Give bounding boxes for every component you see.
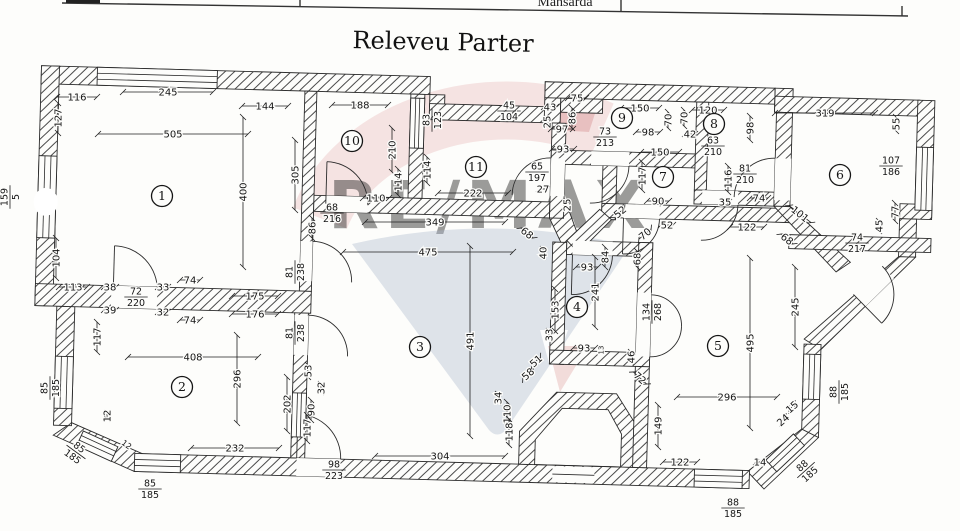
svg-text:32: 32	[317, 382, 328, 395]
svg-text:114: 114	[423, 160, 434, 179]
svg-text:110: 110	[366, 194, 385, 205]
svg-text:53: 53	[304, 365, 315, 378]
svg-text:88: 88	[829, 386, 840, 398]
dimension-label: 85185	[40, 376, 63, 399]
dimension-label: 35	[718, 198, 732, 209]
svg-text:74: 74	[184, 276, 197, 287]
svg-text:97: 97	[556, 125, 569, 136]
svg-text:216: 216	[323, 214, 341, 225]
dimension-label: 27	[536, 185, 550, 196]
svg-text:12: 12	[103, 410, 114, 423]
svg-text:210: 210	[736, 175, 754, 186]
svg-text:268: 268	[653, 303, 664, 321]
svg-text:38: 38	[104, 283, 117, 294]
dimension-label: 52	[658, 221, 676, 232]
svg-text:117: 117	[638, 166, 649, 185]
dimension-label: 88185	[721, 498, 744, 521]
dimension-label: 107186	[879, 156, 902, 179]
svg-text:238: 238	[296, 324, 307, 342]
svg-text:134: 134	[642, 303, 653, 321]
svg-text:86: 86	[308, 222, 319, 235]
dimension-label: 33	[545, 328, 556, 342]
dimension-label: 25	[543, 115, 554, 129]
dimension-label: 188	[329, 101, 391, 112]
svg-text:238: 238	[296, 263, 307, 281]
svg-text:81: 81	[285, 266, 296, 278]
svg-text:400: 400	[239, 182, 250, 201]
dimension-label: 40	[539, 246, 550, 260]
dimension-label: 74	[177, 276, 203, 287]
svg-text:5: 5	[714, 338, 722, 353]
svg-text:35: 35	[719, 198, 732, 209]
svg-text:123: 123	[433, 111, 444, 129]
scanned-floor-plan-page: RE/MAX Mansarda Releveu Parter	[0, 0, 960, 531]
svg-text:110: 110	[503, 404, 514, 423]
svg-text:42: 42	[684, 130, 697, 141]
dimension-label: 400	[239, 114, 250, 270]
svg-text:65: 65	[531, 162, 543, 173]
svg-text:93: 93	[557, 145, 570, 156]
svg-text:220: 220	[127, 298, 145, 309]
cropped-table-fragment: Mansarda	[62, 0, 908, 16]
svg-text:104: 104	[52, 248, 63, 267]
svg-text:52: 52	[661, 221, 674, 232]
svg-text:159: 159	[0, 188, 11, 206]
dimension-label: 296	[233, 332, 244, 426]
svg-text:63: 63	[707, 136, 719, 147]
svg-text:175: 175	[245, 292, 264, 303]
svg-text:74: 74	[184, 316, 197, 327]
svg-text:40: 40	[539, 247, 550, 260]
dimension-label: 98	[746, 113, 757, 143]
svg-text:185: 185	[141, 490, 159, 501]
dimension-label: 245	[791, 264, 802, 350]
svg-text:197: 197	[528, 173, 546, 184]
dimension-label: 25	[563, 198, 574, 212]
svg-text:34: 34	[494, 392, 505, 405]
svg-text:45: 45	[503, 101, 515, 112]
dimension-label: 116	[724, 163, 735, 195]
svg-text:46: 46	[627, 351, 638, 364]
svg-text:245: 245	[791, 297, 802, 316]
svg-text:55: 55	[892, 118, 903, 131]
room-number-7: 7	[653, 167, 674, 188]
svg-text:217: 217	[848, 244, 866, 255]
svg-text:15: 15	[784, 399, 801, 416]
room-number-4: 4	[567, 297, 588, 318]
svg-text:113: 113	[63, 283, 82, 294]
svg-text:232: 232	[225, 444, 244, 455]
svg-text:223: 223	[325, 471, 343, 482]
svg-text:185: 185	[724, 509, 742, 520]
svg-text:84: 84	[601, 251, 612, 264]
dimension-label: 1595	[0, 185, 22, 208]
dimension-label: 81238	[285, 321, 308, 344]
svg-text:186: 186	[882, 167, 900, 178]
svg-text:68: 68	[633, 253, 644, 266]
dimension-label: 74	[177, 316, 203, 327]
svg-text:73: 73	[599, 127, 611, 138]
dimension-label: 14	[753, 458, 767, 469]
svg-text:107: 107	[882, 156, 900, 167]
room-number-11: 11	[466, 157, 487, 178]
svg-text:98: 98	[642, 128, 655, 139]
dimension-label: 42	[682, 130, 698, 141]
svg-text:75: 75	[571, 94, 584, 105]
svg-text:202: 202	[283, 394, 294, 413]
svg-text:85: 85	[40, 382, 51, 394]
table-cell-mansarda: Mansarda	[537, 0, 593, 10]
room-number-9: 9	[612, 108, 633, 129]
dimension-label: 149	[654, 402, 665, 450]
svg-text:72: 72	[130, 287, 142, 298]
svg-text:495: 495	[746, 333, 757, 352]
svg-text:98: 98	[746, 122, 757, 135]
svg-text:1: 1	[158, 188, 166, 203]
svg-text:245: 245	[158, 88, 177, 99]
svg-text:86: 86	[568, 112, 579, 125]
svg-text:6: 6	[836, 167, 844, 182]
svg-text:408: 408	[183, 353, 202, 364]
drawing-title: Releveu Parter	[352, 26, 534, 58]
svg-text:149: 149	[654, 416, 665, 435]
dimension-label: 13	[598, 346, 606, 355]
room-number-3: 3	[410, 337, 431, 358]
dimension-label: 408	[125, 353, 261, 364]
svg-text:4: 4	[573, 299, 581, 314]
svg-text:33: 33	[545, 329, 556, 342]
svg-text:475: 475	[418, 248, 437, 259]
dimension-label: 46	[627, 349, 638, 365]
svg-text:74: 74	[753, 194, 766, 205]
dimension-label: 53	[304, 362, 315, 380]
svg-text:98: 98	[328, 460, 340, 471]
svg-text:14: 14	[754, 458, 767, 469]
svg-text:122: 122	[670, 458, 689, 469]
dimension-label: 81238	[285, 260, 308, 283]
svg-text:8: 8	[710, 116, 718, 131]
dimension-label: 55	[892, 114, 903, 134]
dimension-label: 38	[101, 283, 119, 294]
svg-text:188: 188	[350, 101, 369, 112]
svg-text:43: 43	[544, 103, 557, 114]
room-number-1: 1	[152, 186, 173, 207]
room-number-6: 6	[830, 165, 851, 186]
dimension-label: 117	[93, 319, 104, 355]
svg-text:491: 491	[466, 331, 477, 350]
svg-text:222: 222	[463, 189, 482, 200]
svg-text:241: 241	[591, 282, 602, 301]
svg-text:122: 122	[737, 223, 756, 234]
dimension-label: 32	[317, 381, 328, 395]
dimension-label: 34	[494, 391, 505, 405]
svg-text:319: 319	[815, 109, 834, 120]
svg-text:210: 210	[704, 147, 722, 158]
svg-text:117: 117	[93, 327, 104, 346]
svg-text:116: 116	[724, 169, 735, 188]
svg-text:13: 13	[598, 346, 606, 355]
svg-text:153: 153	[551, 300, 562, 319]
svg-text:25: 25	[563, 199, 574, 212]
svg-text:176: 176	[245, 310, 264, 321]
svg-text:296: 296	[717, 393, 736, 404]
svg-text:150: 150	[650, 148, 669, 159]
dimension-label: 70	[680, 107, 691, 129]
svg-text:144: 144	[255, 102, 274, 113]
svg-text:90: 90	[652, 197, 665, 208]
svg-text:185: 185	[840, 383, 851, 401]
svg-text:9: 9	[618, 110, 626, 125]
svg-text:305: 305	[291, 165, 302, 184]
dimension-label: 245	[120, 88, 216, 99]
svg-text:150: 150	[630, 104, 649, 115]
dimension-label: 12	[103, 410, 114, 423]
svg-text:104: 104	[500, 112, 518, 123]
svg-text:114: 114	[394, 172, 405, 191]
dimension-label: 232	[188, 444, 282, 455]
svg-text:77: 77	[891, 206, 902, 219]
dimension-label: 495	[746, 255, 757, 431]
svg-text:118: 118	[505, 422, 516, 441]
dimension-label: 85185	[138, 479, 161, 502]
dimension-label: 116	[54, 93, 100, 104]
svg-text:25: 25	[543, 116, 554, 129]
dimension-label: 33	[155, 283, 171, 294]
svg-text:68: 68	[326, 203, 338, 214]
svg-text:81: 81	[739, 164, 751, 175]
room-number-5: 5	[708, 336, 729, 357]
dimension-label: 144	[239, 102, 291, 113]
svg-text:70: 70	[680, 112, 691, 125]
svg-text:39: 39	[104, 306, 117, 317]
svg-text:213: 213	[596, 138, 614, 149]
svg-text:116: 116	[67, 93, 86, 104]
svg-text:93: 93	[581, 263, 594, 274]
dimension-label: 296	[674, 393, 780, 404]
svg-text:32: 32	[157, 308, 170, 319]
dimension-label: 122	[727, 223, 767, 234]
svg-text:7: 7	[659, 169, 667, 184]
dimension-label: 505	[95, 130, 251, 141]
dimension-label: 43	[541, 103, 559, 114]
svg-text:210: 210	[388, 140, 399, 159]
svg-text:296: 296	[233, 369, 244, 388]
svg-text:27: 27	[537, 185, 550, 196]
svg-text:185: 185	[51, 379, 62, 397]
dimension-label: 134268	[642, 300, 665, 323]
svg-text:349: 349	[425, 218, 444, 229]
room-number-8: 8	[704, 114, 725, 135]
room-number-2: 2	[172, 377, 193, 398]
svg-text:45: 45	[875, 220, 886, 233]
svg-text:505: 505	[163, 130, 182, 141]
svg-text:70: 70	[664, 114, 675, 127]
svg-text:85: 85	[144, 479, 156, 490]
dimension-label: 45	[875, 218, 886, 234]
svg-text:117: 117	[303, 418, 314, 437]
dimension-label: 32	[155, 308, 171, 319]
svg-text:93: 93	[578, 344, 591, 355]
dimension-label: 81210	[733, 164, 756, 187]
room-number-10: 10	[342, 131, 363, 152]
svg-text:304: 304	[430, 452, 449, 463]
svg-text:3: 3	[416, 339, 424, 354]
svg-text:5: 5	[11, 194, 22, 200]
svg-text:83: 83	[422, 114, 433, 126]
svg-text:88: 88	[727, 498, 739, 509]
svg-text:81: 81	[285, 327, 296, 339]
dimension-label: 70	[664, 109, 675, 131]
svg-text:33: 33	[157, 283, 170, 294]
svg-text:74: 74	[851, 233, 863, 244]
dimension-label: 122	[660, 458, 700, 469]
svg-text:90: 90	[307, 404, 318, 417]
dimension-label: 98	[633, 128, 663, 139]
dimension-label: 39	[101, 306, 119, 317]
svg-text:2: 2	[178, 379, 186, 394]
floor-plan-drawing: RE/MAX Mansarda Releveu Parter	[0, 0, 960, 531]
svg-text:127: 127	[54, 108, 65, 127]
svg-text:10: 10	[344, 133, 360, 148]
svg-text:11: 11	[468, 159, 484, 174]
dimension-label: 88185	[829, 380, 852, 403]
